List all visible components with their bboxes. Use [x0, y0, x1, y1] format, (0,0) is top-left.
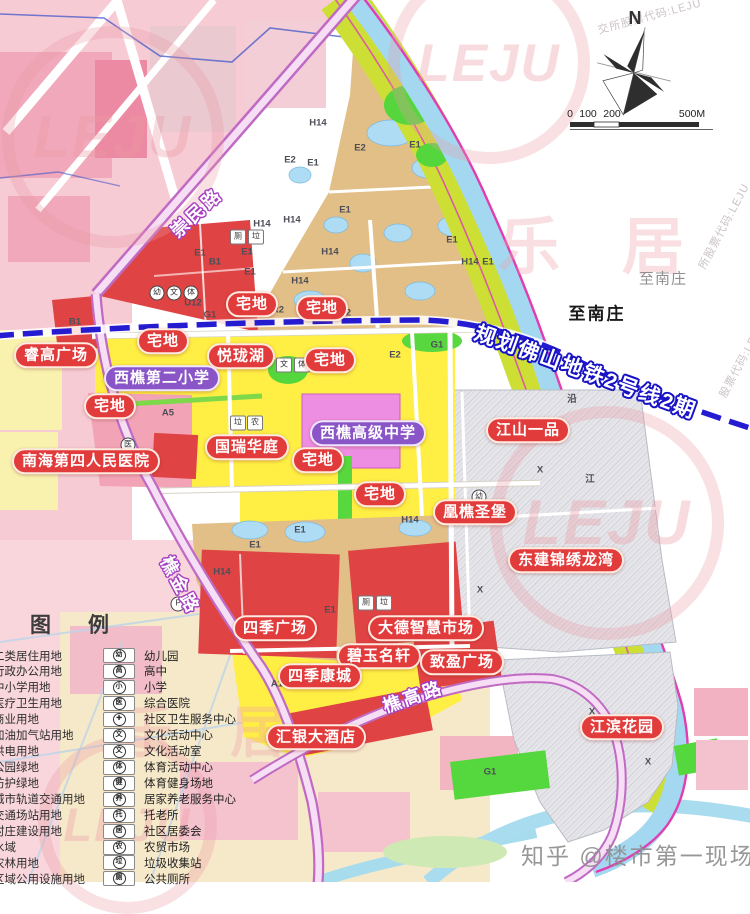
planning-map: LEJULEJULEJULEJU乐 居乐 居交所股票代码:LEJU所股票代码:L…	[0, 0, 750, 882]
map-canvas	[0, 0, 750, 882]
scale-bar-tick: 500M	[679, 108, 705, 120]
scale-bar-tick: 100	[579, 108, 597, 120]
compass-north-label: N	[622, 8, 648, 29]
scale-bar-tick: 0	[567, 108, 573, 120]
scale-bar-tick: 200	[603, 108, 621, 120]
